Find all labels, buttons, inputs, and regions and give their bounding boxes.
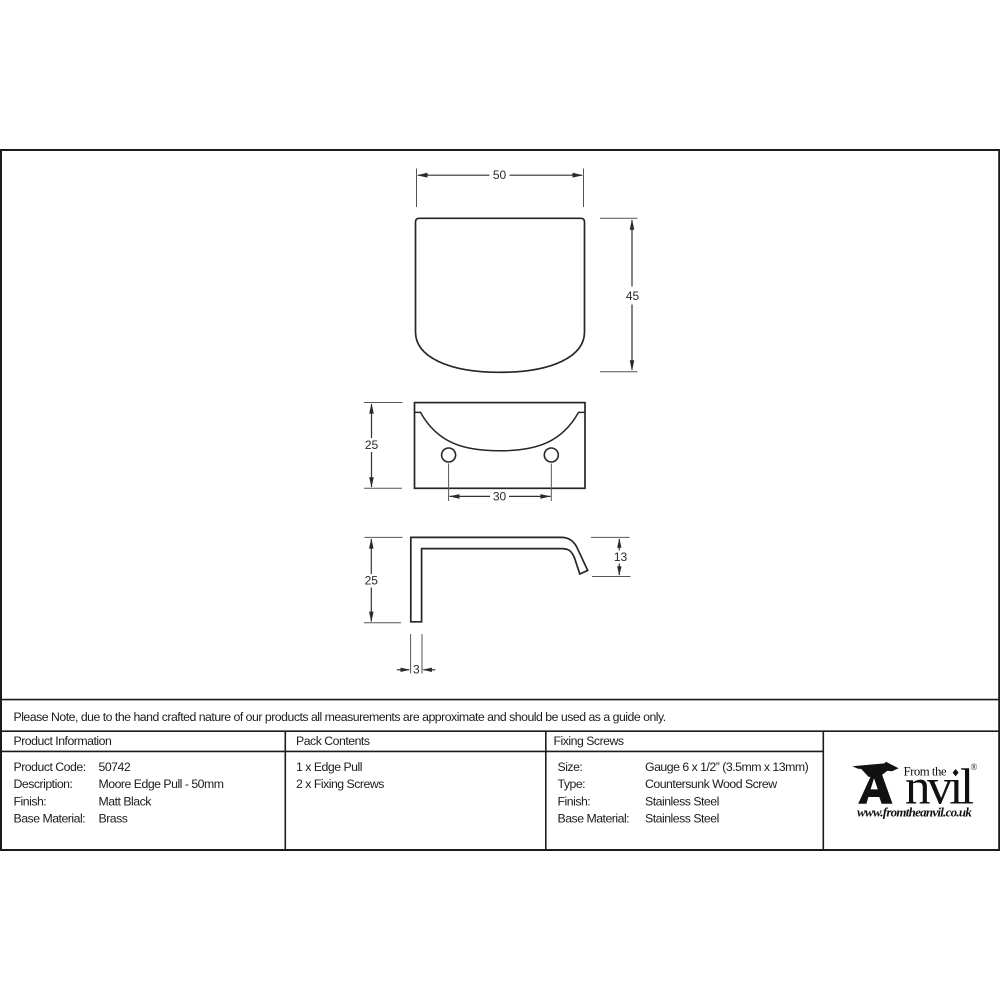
svg-text:25: 25 [365,574,379,588]
svg-text:Product Code:: Product Code: [14,760,86,774]
svg-text:2 x Fixing Screws: 2 x Fixing Screws [296,777,384,791]
svg-text:50: 50 [493,168,507,182]
svg-text:1 x Edge Pull: 1 x Edge Pull [296,760,362,774]
svg-text:Base Material:: Base Material: [14,812,86,826]
svg-text:Pack Contents: Pack Contents [296,734,370,748]
svg-text:50742: 50742 [99,760,131,774]
svg-text:Base Material:: Base Material: [558,812,630,826]
svg-text:Fixing Screws: Fixing Screws [554,734,624,748]
svg-text:Type:: Type: [558,777,586,791]
svg-text:Finish:: Finish: [14,794,47,808]
svg-text:Countersunk Wood Screw: Countersunk Wood Screw [645,777,777,791]
svg-text:Please Note, due to the hand c: Please Note, due to the hand crafted nat… [14,710,666,724]
svg-text:13: 13 [614,550,628,564]
svg-text:Moore Edge Pull - 50mm: Moore Edge Pull - 50mm [99,777,224,791]
svg-text:Brass: Brass [99,812,128,826]
svg-text:Stainless Steel: Stainless Steel [645,794,719,808]
svg-text:25: 25 [365,438,379,452]
svg-text:www.fromtheanvil.co.uk: www.fromtheanvil.co.uk [857,805,972,820]
svg-text:30: 30 [493,489,507,503]
svg-text:Finish:: Finish: [558,794,591,808]
svg-text:Description:: Description: [14,777,73,791]
svg-text:Product Information: Product Information [14,734,112,748]
svg-text:®: ® [971,762,978,772]
svg-text:Matt Black: Matt Black [99,794,153,808]
svg-text:Size:: Size: [558,760,583,774]
svg-text:45: 45 [626,289,640,303]
svg-text:Gauge 6 x 1/2” (3.5mm x 13mm): Gauge 6 x 1/2” (3.5mm x 13mm) [645,760,809,774]
svg-text:3: 3 [413,662,420,676]
svg-text:Stainless Steel: Stainless Steel [645,812,719,826]
